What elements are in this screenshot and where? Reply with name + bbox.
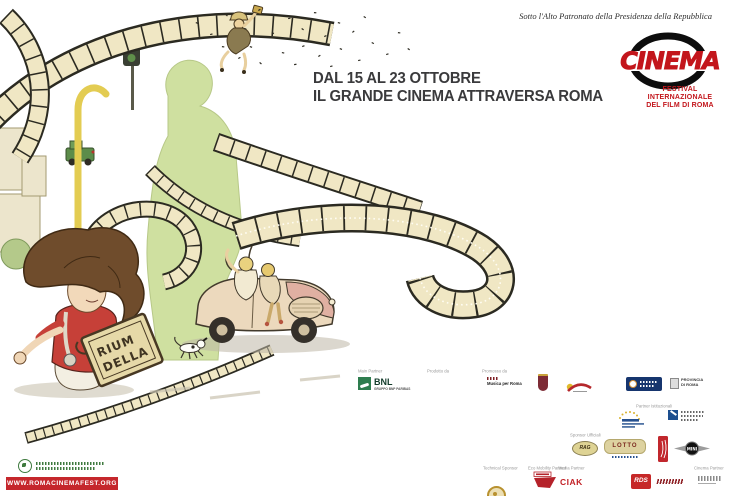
mini-wings-logo: MINI (674, 441, 710, 456)
provincia-emblem (670, 378, 679, 389)
film-strip-mid (216, 142, 420, 210)
bnl-icon (358, 377, 371, 390)
cinema-circle-mark: CINEMA (616, 32, 724, 90)
eco-logo (18, 459, 32, 473)
ciak-logo: CIAK (560, 477, 583, 487)
ministero-beni-culturali-logo (668, 410, 678, 420)
bnl-name: BNL (374, 377, 393, 387)
musica-per-roma-logo: Musica per Roma (487, 377, 525, 386)
label-technical-sponsor: Technical Sponsor (483, 466, 518, 471)
cinema-partner-logo (698, 476, 722, 484)
provincia-line2: DI ROMA (681, 382, 698, 387)
label-cinema-partner: Cinema Partner (694, 466, 724, 471)
cinema-wordmark: CINEMA (620, 47, 719, 75)
gioco-del-lotto-logo: LOTTO (604, 439, 646, 458)
camera-di-commercio-logo (565, 376, 593, 394)
girl-with-suitcase: RIUM DELLA (14, 228, 163, 398)
festival-subtitle-line3: DEL FILM DI ROMA (636, 102, 724, 110)
headline-line1: DAL 15 AL 23 OTTOBRE (313, 70, 603, 88)
rag-logo: RAG (572, 441, 598, 456)
festival-subtitle: FESTIVAL INTERNAZIONALE DEL FILM DI ROMA (636, 86, 724, 109)
headline-line2: IL GRANDE CINEMA ATTRAVERSA ROMA (313, 88, 603, 106)
regione-lazio-logo (626, 377, 662, 391)
eco-fine-print-line2 (36, 467, 96, 470)
festival-subtitle-line2: INTERNAZIONALE (636, 94, 724, 102)
atac-flag-logo (531, 471, 559, 491)
media-programme-logo (616, 410, 648, 430)
website-bar: WWW.ROMACINEMAFEST.ORG (6, 477, 118, 490)
musica-per-roma-text: Musica per Roma (487, 381, 525, 386)
comune-di-roma-shield (538, 374, 548, 391)
label-sponsor-ufficiali: Sponsor Ufficiali (570, 433, 601, 438)
headline: DAL 15 AL 23 OTTOBRE IL GRANDE CINEMA AT… (313, 70, 603, 105)
label-prodotto-da: Prodotto da (427, 369, 449, 374)
label-media-partner: Media Partner (558, 466, 585, 471)
eco-fine-print-line1 (36, 462, 104, 465)
label-promosso-da: Promosso da (482, 369, 507, 374)
bnl-sub: GRUPPO BNP PARIBAS (374, 387, 410, 391)
media-partner-logo-4 (656, 479, 683, 484)
produced-by-logo (429, 377, 455, 378)
patronage-text: Sotto l'Alto Patronato della Presidenza … (430, 11, 712, 21)
lotto-pill: LOTTO (604, 439, 646, 454)
bnl-logo: BNL GRUPPO BNP PARIBAS (358, 377, 371, 390)
label-partner-istituzionali: Partner Istituzionali (636, 404, 672, 409)
label-main-partner: Main Partner (358, 369, 382, 374)
festival-subtitle-line1: FESTIVAL (636, 86, 724, 94)
red-tab-logo (658, 436, 668, 462)
poster: RIUM DELLA Sotto l'Alto Patronato della … (0, 0, 740, 496)
rds-logo: RDS (631, 474, 651, 489)
mini-text: MINI (687, 447, 698, 452)
film-strip-top (0, 25, 332, 128)
